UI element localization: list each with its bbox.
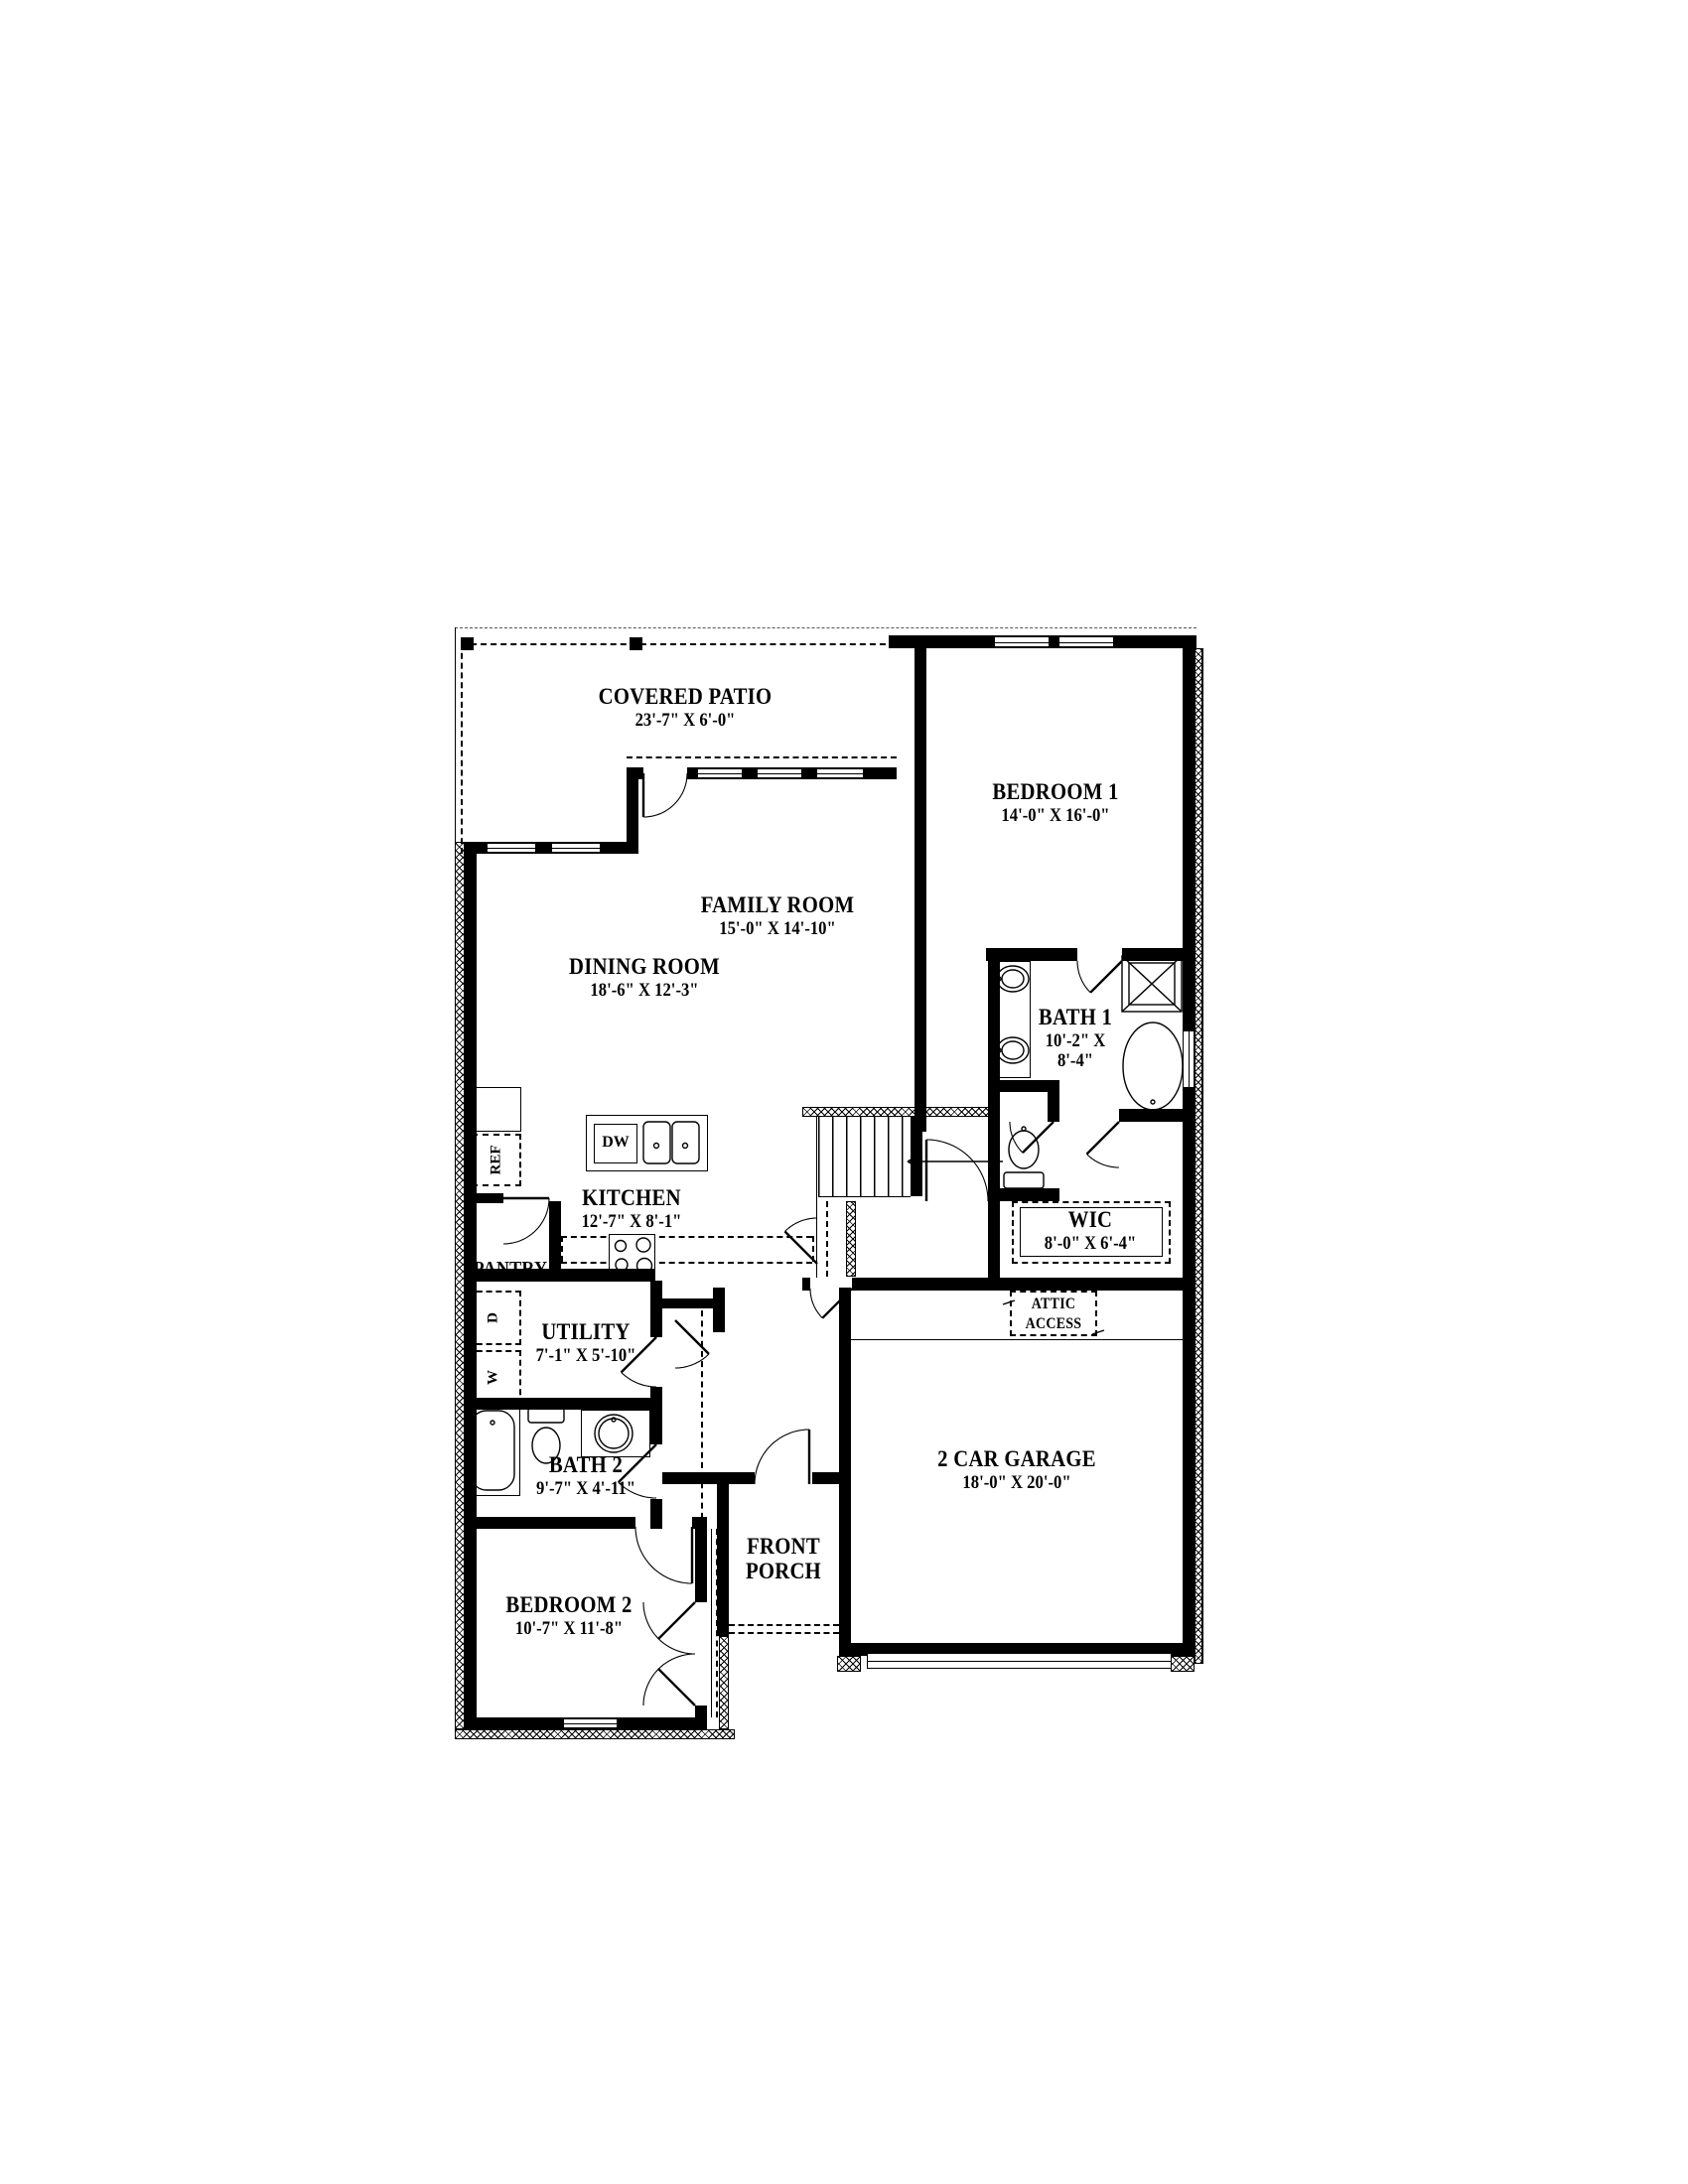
door-swing-arc [1087, 1155, 1120, 1168]
room-label-dining-room: DINING ROOM 18'-6" X 12'-3" [569, 955, 720, 1002]
floorplan-page: COVERED PATIO 23'-7" X 6'-0" BEDROOM 1 1… [0, 0, 1688, 2184]
shower-icon [1122, 956, 1182, 1012]
room-dims: 18'-0" X 20'-0" [937, 1474, 1096, 1494]
room-label-front-porch: FRONT PORCH [736, 1535, 830, 1584]
wall-segment [1122, 948, 1183, 961]
masonry-hatch [1195, 648, 1202, 1664]
wall-segment [802, 1278, 810, 1291]
masonry-hatch [846, 1201, 856, 1277]
window [994, 636, 1050, 647]
dashed-line [561, 1236, 812, 1238]
dashed-line [461, 643, 463, 854]
bath1-vanity [996, 961, 1031, 1078]
door-leaf [1090, 961, 1122, 993]
wall-segment [630, 637, 642, 650]
room-name: DINING ROOM [569, 955, 720, 980]
window [563, 1718, 618, 1728]
wall-segment [662, 1298, 713, 1308]
door-swing-arc [643, 773, 687, 817]
masonry-hatch [455, 1729, 735, 1739]
door-swing-arc [755, 1430, 809, 1484]
thin-line [711, 1529, 712, 1717]
door-swing-arc [926, 1140, 988, 1201]
wall-segment [461, 637, 474, 650]
room-dims: 7'-1" X 5'-10" [536, 1347, 636, 1367]
masonry-hatch [802, 1107, 989, 1117]
wall-segment [914, 635, 926, 1132]
door-swing-arc [635, 1527, 692, 1583]
dryer-label: D [486, 1304, 502, 1332]
room-name: ATTIC ACCESS [1014, 1295, 1092, 1334]
wall-segment [852, 1278, 1185, 1291]
door-leaf [658, 1602, 695, 1639]
room-label-attic-access: ATTIC ACCESS [1014, 1295, 1092, 1334]
room-dims: 18'-6" X 12'-3" [569, 982, 720, 1002]
door-leaf [675, 1320, 709, 1354]
wall-segment [695, 1529, 707, 1602]
room-label-bedroom-1: BEDROOM 1 14'-0" X 16'-0" [992, 780, 1118, 827]
fixture-detail-icon [1151, 1100, 1155, 1104]
room-name: BATH 1 [1028, 1006, 1122, 1030]
detail-line [1122, 956, 1182, 1012]
thin-line [851, 1339, 1185, 1340]
window [1058, 636, 1114, 647]
masonry-hatch [1171, 1656, 1195, 1672]
dashed-line [627, 756, 897, 758]
door-leaf [1023, 1122, 1054, 1153]
window [1183, 1030, 1195, 1088]
window [816, 768, 864, 778]
fixture-detail-icon [1022, 1127, 1026, 1131]
dashed-line [561, 1236, 563, 1262]
wall-segment [717, 1472, 729, 1636]
door-leaf [658, 1669, 695, 1706]
wall-segment [692, 1517, 707, 1529]
room-name: BEDROOM 2 [505, 1593, 632, 1618]
wall-segment [839, 1288, 851, 1643]
wall-segment [695, 1706, 707, 1717]
dashed-line [826, 1201, 828, 1277]
toilet-tank-icon [528, 1408, 564, 1423]
room-dims: 9'-7" X 4'-11" [536, 1480, 635, 1500]
dishwasher-label: DW [596, 1134, 635, 1152]
window [757, 768, 802, 778]
door-swing-arc [810, 1289, 822, 1318]
room-label-pantry: PANTRY [474, 1259, 548, 1281]
window [697, 768, 743, 778]
wall-segment [465, 1517, 635, 1529]
dashed-line [561, 1262, 812, 1264]
wall-segment [988, 961, 1000, 1278]
wall-segment [650, 1281, 662, 1337]
wall-segment [988, 1080, 1048, 1092]
door-swing-arc [785, 1218, 818, 1232]
door-swing-arc [643, 1602, 695, 1654]
room-label-garage: 2 CAR GARAGE 18'-0" X 20'-0" [937, 1447, 1096, 1494]
thin-line [1202, 648, 1203, 1664]
window [487, 843, 536, 853]
door-leaf [1087, 1122, 1120, 1155]
room-label-utility: UTILITY 7'-1" X 5'-10" [536, 1320, 636, 1367]
thin-line [816, 1117, 817, 1196]
window [551, 843, 601, 853]
wall-segment [650, 1499, 662, 1529]
shower-inner-icon [1129, 963, 1175, 1005]
room-label-covered-patio: COVERED PATIO 23'-7" X 6'-0" [599, 685, 773, 732]
detail-line [1122, 956, 1182, 1012]
wall-segment [1119, 1109, 1185, 1122]
room-label-family-room: FAMILY ROOM 15'-0" X 14'-10" [701, 893, 855, 940]
wall-segment [911, 1117, 922, 1196]
room-label-kitchen: KITCHEN 12'-7" X 8'-1" [582, 1186, 682, 1233]
room-dims: 10'-2" X 8'-4" [1028, 1032, 1122, 1072]
wall-segment [1048, 1080, 1059, 1122]
room-name: UTILITY [536, 1320, 636, 1345]
room-dims: 15'-0" X 14'-10" [701, 920, 855, 940]
wall-segment [465, 1398, 662, 1410]
door-swing-arc [643, 1654, 695, 1706]
room-name: WIC [1045, 1208, 1136, 1233]
room-name: FRONT PORCH [736, 1535, 830, 1584]
room-label-bath-2: BATH 2 9'-7" X 4'-11" [536, 1453, 635, 1500]
dashed-line [461, 643, 896, 645]
room-label-bedroom-2: BEDROOM 2 10'-7" X 11'-8" [505, 1593, 632, 1640]
dashed-line [812, 1236, 814, 1262]
room-name: 2 CAR GARAGE [937, 1447, 1096, 1472]
room-dims: 12'-7" X 8'-1" [582, 1213, 682, 1233]
wall-segment [662, 1472, 755, 1484]
room-dims: 14'-0" X 16'-0" [992, 807, 1118, 827]
roof-line [455, 627, 1196, 628]
room-name: COVERED PATIO [599, 685, 773, 710]
bathtub-icon [1123, 1023, 1183, 1110]
room-label-wic: WIC 8'-0" X 6'-4" [1045, 1208, 1136, 1255]
garage-door [867, 1653, 1172, 1669]
thin-line [816, 1196, 817, 1278]
room-name: FAMILY ROOM [701, 893, 855, 918]
room-dims: 23'-7" X 6'-0" [599, 712, 773, 732]
door-swing-arc [1077, 961, 1090, 993]
room-name: PANTRY [474, 1259, 548, 1281]
room-dims: 10'-7" X 11'-8" [505, 1620, 632, 1640]
thin-line [455, 627, 456, 842]
wall-segment [988, 1188, 1059, 1201]
room-label-bath-1: BATH 1 10'-2" X 8'-4" [1028, 1006, 1122, 1072]
door-swing-arc [675, 1354, 709, 1368]
washer-label: W [486, 1364, 502, 1392]
toilet-tank-icon [1004, 1172, 1044, 1188]
wall-segment [986, 948, 1077, 961]
wall-segment [650, 1398, 662, 1444]
room-name: BEDROOM 1 [992, 780, 1118, 805]
masonry-hatch [837, 1656, 861, 1672]
wall-segment [627, 767, 638, 854]
wall-segment [549, 1201, 561, 1269]
room-name: KITCHEN [582, 1186, 682, 1211]
masonry-hatch [719, 1636, 729, 1729]
dashed-line [701, 1300, 703, 1529]
stair-treads [818, 1117, 911, 1197]
door-swing-arc [1010, 1122, 1023, 1153]
dashed-line [729, 1632, 839, 1634]
refrigerator-label: REF [489, 1146, 505, 1175]
wall-segment [465, 1193, 503, 1203]
bath2-vanity [581, 1410, 650, 1457]
wall-segment [465, 842, 477, 1729]
floor-plan: COVERED PATIO 23'-7" X 6'-0" BEDROOM 1 1… [447, 614, 1203, 1751]
room-name: BATH 2 [536, 1453, 635, 1478]
wall-segment [1183, 635, 1195, 1656]
dashed-line [729, 1624, 839, 1626]
door-swing-arc [503, 1198, 549, 1244]
door-swing-arc [622, 1372, 656, 1387]
masonry-hatch [455, 842, 465, 1729]
wall-segment [713, 1288, 725, 1332]
toilet-bowl-icon [1009, 1131, 1039, 1168]
room-dims: 8'-0" X 6'-4" [1045, 1235, 1136, 1255]
